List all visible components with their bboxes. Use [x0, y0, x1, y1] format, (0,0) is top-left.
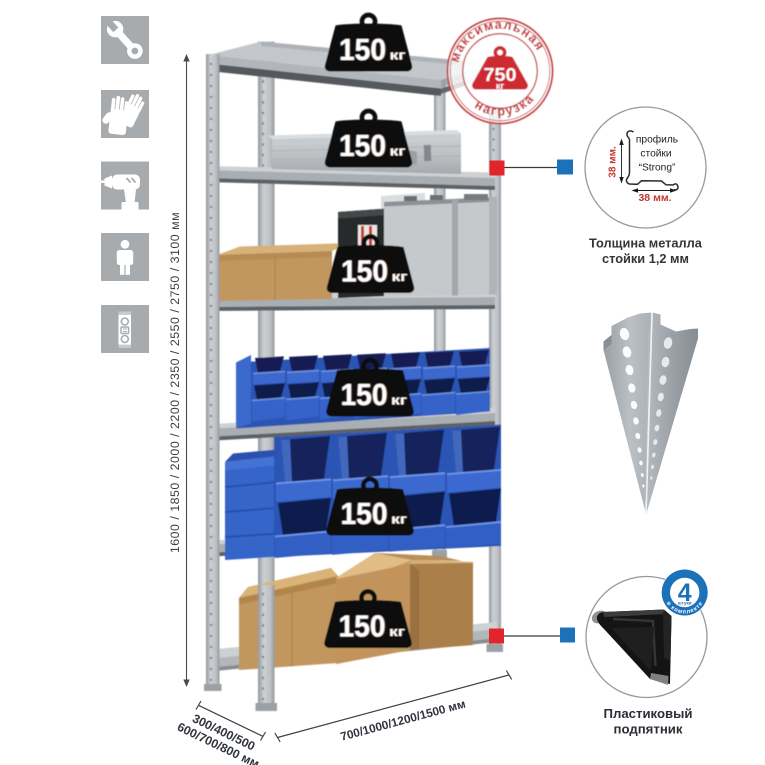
svg-text:1600 / 1850 / 2000 / 2200 / 23: 1600 / 1850 / 2000 / 2200 / 2350 / 2550 …	[168, 212, 182, 553]
svg-text:Толщина металла: Толщина металла	[589, 236, 703, 251]
svg-text:штуки: штуки	[678, 600, 692, 605]
svg-text:Пластиковый: Пластиковый	[603, 706, 692, 721]
svg-text:38 мм.: 38 мм.	[638, 192, 671, 204]
svg-text:“Strong”: “Strong”	[639, 163, 676, 174]
svg-text:стойки: стойки	[640, 149, 671, 160]
svg-text:профиль: профиль	[636, 134, 678, 146]
svg-text:стойки 1,2 мм: стойки 1,2 мм	[602, 251, 689, 266]
svg-text:подпятник: подпятник	[613, 722, 682, 737]
svg-text:38 мм.: 38 мм.	[608, 146, 619, 178]
svg-text:кг: кг	[496, 81, 505, 91]
